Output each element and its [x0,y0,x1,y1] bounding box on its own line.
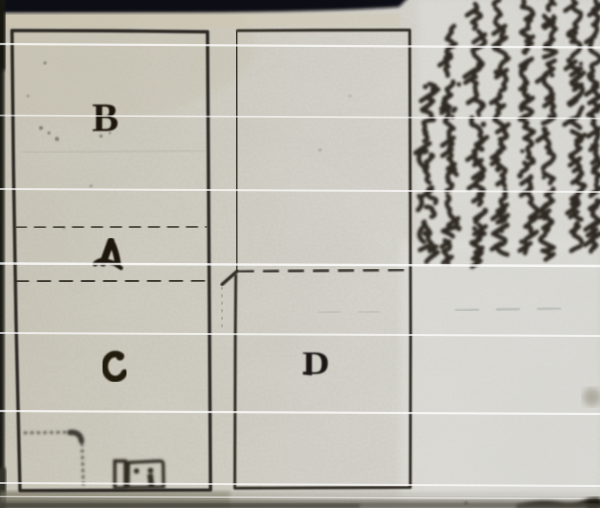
svg-text:B: B [92,95,119,140]
svg-text:D: D [302,344,329,381]
